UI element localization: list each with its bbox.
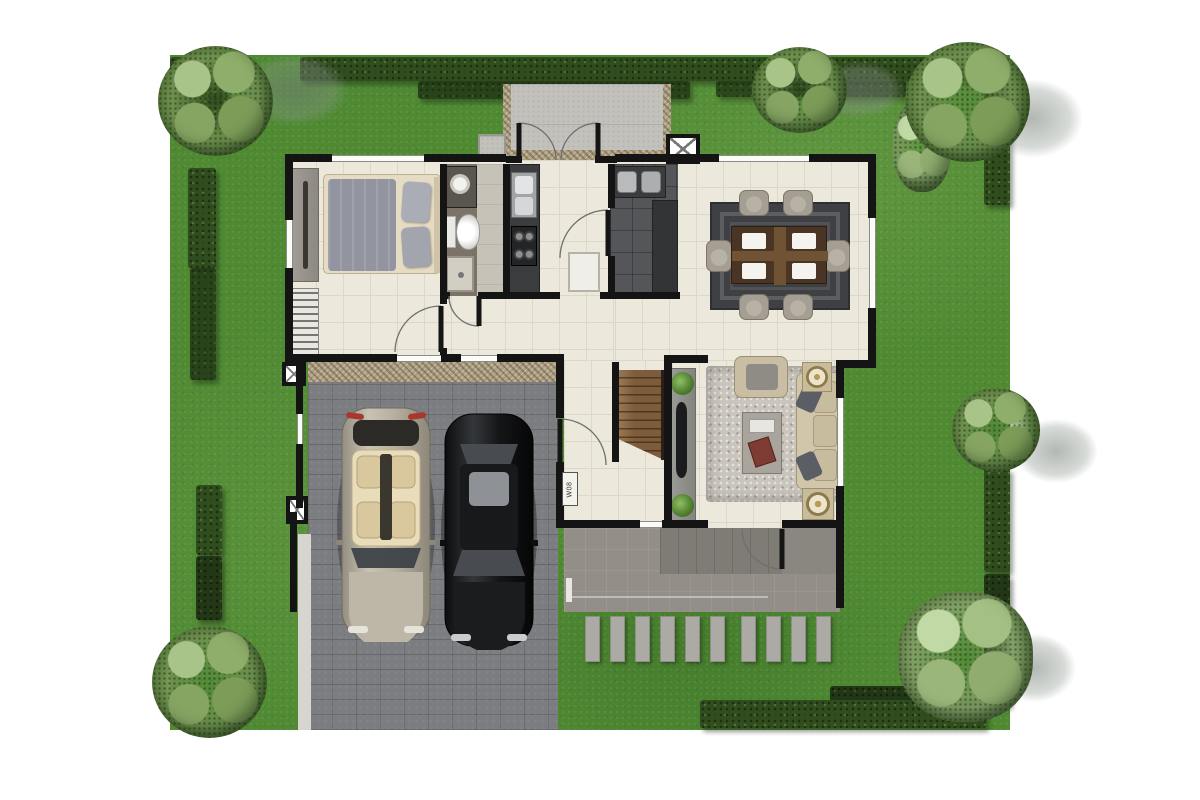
wall	[782, 520, 844, 528]
window-dining-north	[719, 155, 809, 162]
book	[748, 436, 777, 468]
bed	[323, 174, 441, 274]
utility-basin	[641, 171, 661, 193]
wall	[290, 512, 297, 612]
wall	[478, 292, 560, 299]
dining-chair	[739, 190, 769, 216]
window-corridor-south	[461, 355, 497, 362]
armchair-cushion	[746, 364, 778, 390]
side-walkway	[298, 534, 311, 730]
armchair	[734, 356, 788, 398]
wall-stair-west	[612, 362, 619, 462]
wall	[506, 156, 522, 163]
dining-chair	[739, 294, 769, 320]
table-runner	[732, 251, 828, 261]
car-sedan-black	[440, 410, 538, 650]
dining-chair	[706, 240, 732, 272]
shrub-bottom-right	[898, 592, 1033, 722]
stepping-stone	[791, 616, 806, 662]
wall	[615, 154, 719, 162]
wall	[868, 154, 876, 218]
table-lamp	[806, 492, 830, 516]
place-setting	[742, 233, 766, 249]
wall-utility-west	[608, 164, 615, 208]
stepping-stone	[635, 616, 650, 662]
wall	[836, 360, 844, 398]
place-setting	[792, 233, 816, 249]
bed-pillow	[401, 181, 432, 223]
window-living-east	[837, 398, 844, 486]
wall	[809, 154, 876, 162]
wall	[440, 292, 450, 299]
wall	[595, 156, 617, 163]
window-dining-east	[869, 218, 876, 308]
wall	[285, 154, 293, 220]
staircase	[616, 370, 664, 438]
hedge-left-segment	[196, 485, 222, 555]
terrace-deck-dark	[660, 528, 782, 574]
tree-top-right	[905, 42, 1030, 162]
stepping-stone	[816, 616, 831, 662]
floor-plan-rendering: W08	[0, 0, 1200, 800]
plant-pot	[671, 372, 694, 395]
terrace-side-wall	[836, 526, 844, 608]
toilet-bowl	[456, 214, 480, 250]
window-garage-west	[297, 414, 303, 444]
hedge-left-segment	[188, 168, 216, 268]
stepping-stone	[766, 616, 781, 662]
hedge-left-segment	[196, 556, 222, 620]
wall	[556, 362, 564, 418]
car-convertible	[336, 404, 436, 642]
terrace-deck-right	[782, 528, 838, 574]
wall	[556, 520, 640, 528]
bathroom-sink	[450, 174, 470, 194]
coffee-table	[742, 412, 782, 474]
tree-top-middle	[752, 47, 847, 133]
tree-bottom-left	[152, 626, 267, 738]
wall	[424, 154, 506, 162]
plan-code-text: W08	[567, 481, 574, 497]
bed-duvet	[328, 179, 396, 271]
dishwasher	[568, 252, 600, 292]
place-setting	[792, 263, 816, 279]
toilet-tank	[446, 216, 456, 248]
wall	[868, 308, 876, 368]
stepping-stone	[710, 616, 725, 662]
stepping-stone-path	[585, 616, 835, 664]
stepping-stone	[741, 616, 756, 662]
utility-basin	[617, 171, 637, 193]
window-corridor-south	[397, 355, 441, 362]
sink-basin	[515, 197, 533, 215]
ac-unit-striped	[291, 288, 319, 358]
plan-code-label: W08	[562, 472, 578, 506]
wardrobe-handle	[303, 181, 308, 269]
utility-tall-counter	[652, 200, 678, 294]
bed-pillow	[401, 226, 432, 268]
wall-garage-west	[296, 362, 303, 414]
stepping-stone	[610, 616, 625, 662]
hedge-left-segment	[190, 268, 216, 380]
stepping-stone	[660, 616, 675, 662]
tree-right	[952, 388, 1040, 472]
wall	[296, 444, 303, 508]
kitchen-sink	[511, 172, 537, 218]
wall-bathroom-kitchen	[503, 164, 510, 296]
place-setting	[742, 263, 766, 279]
hedge-right-segment	[984, 468, 1010, 572]
service-pad	[511, 84, 663, 150]
shower-drain	[458, 272, 464, 278]
window-bedroom-west	[286, 220, 293, 268]
dining-table	[731, 226, 827, 284]
wall	[497, 354, 564, 362]
window-hall-south	[640, 521, 662, 528]
wall-bathroom-west	[440, 164, 447, 304]
garage-threshold	[308, 362, 558, 384]
tree-top-left	[158, 46, 273, 156]
stepping-stone	[585, 616, 600, 662]
stove	[511, 226, 537, 266]
stepping-stone	[685, 616, 700, 662]
television	[676, 402, 687, 478]
wall	[440, 348, 447, 360]
plant-pot	[671, 494, 694, 517]
table-lamp	[806, 366, 828, 388]
magazine	[749, 419, 775, 433]
dining-chair	[783, 294, 813, 320]
terrace-step-mark	[566, 578, 572, 602]
wall	[285, 268, 293, 362]
window-bedroom-north	[332, 155, 424, 162]
utility-sink-counter	[612, 166, 666, 198]
sink-basin	[515, 176, 533, 194]
shower-tray	[446, 256, 474, 292]
dining-chair	[783, 190, 813, 216]
wardrobe	[291, 168, 319, 282]
sofa-cushion	[813, 415, 837, 447]
wall-utility-south	[608, 292, 680, 299]
wall	[285, 354, 397, 362]
terrace-step-line	[572, 596, 768, 598]
wall-tv	[664, 362, 672, 524]
